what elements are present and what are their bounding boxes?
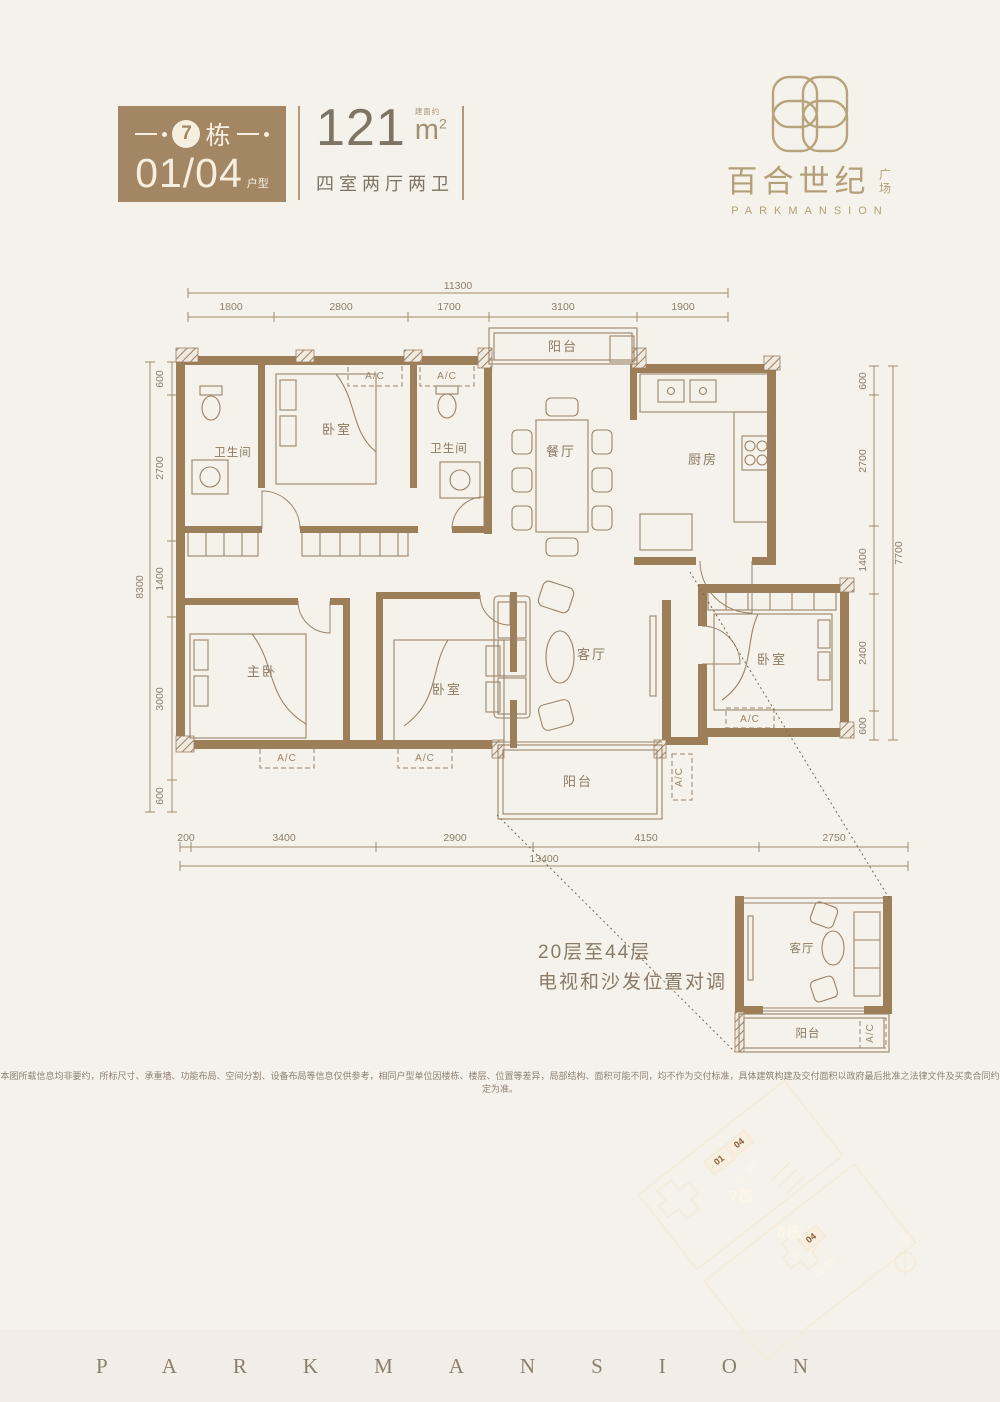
room-labels: 阳台 卫生间 卧室 卫生间 餐厅 厨房 主卧 卧室 客厅 卧室 阳台 客厅 阳台 [214,339,820,1040]
living-label: 客厅 [577,647,607,662]
svg-text:2400: 2400 [857,641,869,665]
bath2-label: 卫生间 [430,441,468,455]
area-unit-group: 建面约 m2 [415,106,447,143]
dining-label: 餐厅 [546,444,576,459]
inset-note-line1: 20层至44层 [538,942,651,963]
svg-text:1400: 1400 [857,548,869,572]
bedroom-right-label: 卧室 [757,652,787,667]
svg-text:600: 600 [154,787,166,805]
brand-logo: 百合世纪 广场 PARKMANSION [700,74,920,217]
inset-living-label: 客厅 [790,941,815,955]
dim-right-total: 7700 [893,541,905,565]
ac-label: A/C [437,371,457,382]
architecture-lines [489,328,892,1052]
silk-banner: UNIT FEATURES 户型解析 ◎轩阔四室，餐客一体，阔绰生活尺度 ◎双阳… [0,1090,1000,1330]
svg-text:2750: 2750 [822,832,846,844]
area-value: 121 [316,102,406,154]
brand-name-cn: 百合世纪 [727,165,871,199]
ac-label: A/C [865,1023,876,1043]
ac-label: A/C [740,714,760,725]
inset-note-line2: 电视和沙发位置对调 [538,971,727,993]
dash-ornament [237,133,259,135]
svg-text:2800: 2800 [329,301,353,313]
svg-text:200: 200 [177,832,195,844]
building-number-row: 7 栋 [135,116,268,152]
bath1-label: 卫生间 [214,445,252,459]
floorplan-poster: 7 栋 01/04 户型 121 建面约 m2 四室两厅两卫 [0,0,1000,1402]
ac-label: A/C [365,371,385,382]
unit-number: 01/04 [135,153,243,194]
svg-text:4150: 4150 [634,832,658,844]
balcony-top-label: 阳台 [548,339,578,354]
dot-ornament [162,132,167,137]
svg-text:1700: 1700 [437,301,461,313]
balcony-bottom-label: 阳台 [563,774,593,789]
svg-text:2700: 2700 [154,456,166,480]
inset-balcony-label: 阳台 [796,1026,821,1040]
header-divider [462,106,464,200]
brand-name-side: 广场 [877,168,894,196]
dash-ornament [135,133,157,135]
bedroom-top-label: 卧室 [322,422,352,437]
header-divider [298,106,300,200]
inset-callout: 20层至44层 电视和沙发位置对调 [497,572,889,1052]
svg-text:1900: 1900 [671,301,695,313]
ac-boxes [260,364,886,1048]
unit-number-row: 01/04 户型 [135,153,269,194]
building-number: 7 [172,120,200,148]
walls [176,356,892,1014]
bedroom-mid-label: 卧室 [432,682,462,697]
hatched-corners [176,348,854,1052]
area-block: 121 建面约 m2 四室两厅两卫 [316,102,448,196]
dimension-labels: 11300 1800 2800 1700 3100 1900 200 3400 … [134,280,905,865]
dim-left-total: 8300 [134,575,146,599]
knot-logo-icon [769,74,851,154]
svg-text:3000: 3000 [154,687,166,711]
ac-label: A/C [674,767,685,787]
building-suffix: 栋 [205,116,231,152]
ac-label: A/C [415,753,435,764]
svg-text:600: 600 [857,717,869,735]
svg-text:1400: 1400 [154,567,166,591]
dimension-lines [145,288,908,871]
ac-labels: A/C A/C A/C A/C A/C A/C A/C [277,371,876,1043]
door-arcs [262,491,752,664]
svg-text:600: 600 [857,372,869,390]
area-unit: m2 [415,117,447,143]
kitchen-label: 厨房 [688,452,718,467]
ac-label: A/C [277,753,297,764]
master-label: 主卧 [247,664,277,679]
svg-text:2900: 2900 [443,832,467,844]
dim-top-total: 11300 [444,280,473,292]
dim-bottom-total: 13400 [529,853,558,865]
unit-label: 户型 [247,178,269,191]
svg-text:2700: 2700 [857,449,869,473]
footer-brand: PARKMANSION [96,1330,864,1402]
svg-text:1800: 1800 [219,301,243,313]
svg-text:600: 600 [154,370,166,388]
brand-name-en: PARKMANSION [700,205,920,217]
room-count-label: 四室两厅两卫 [316,170,448,196]
dot-ornament [264,132,269,137]
svg-text:3400: 3400 [272,832,296,844]
svg-text:3100: 3100 [551,301,575,313]
footer-strip: PARKMANSION [0,1330,1000,1402]
building-unit-badge: 7 栋 01/04 户型 [118,106,286,202]
furniture [188,374,880,1003]
